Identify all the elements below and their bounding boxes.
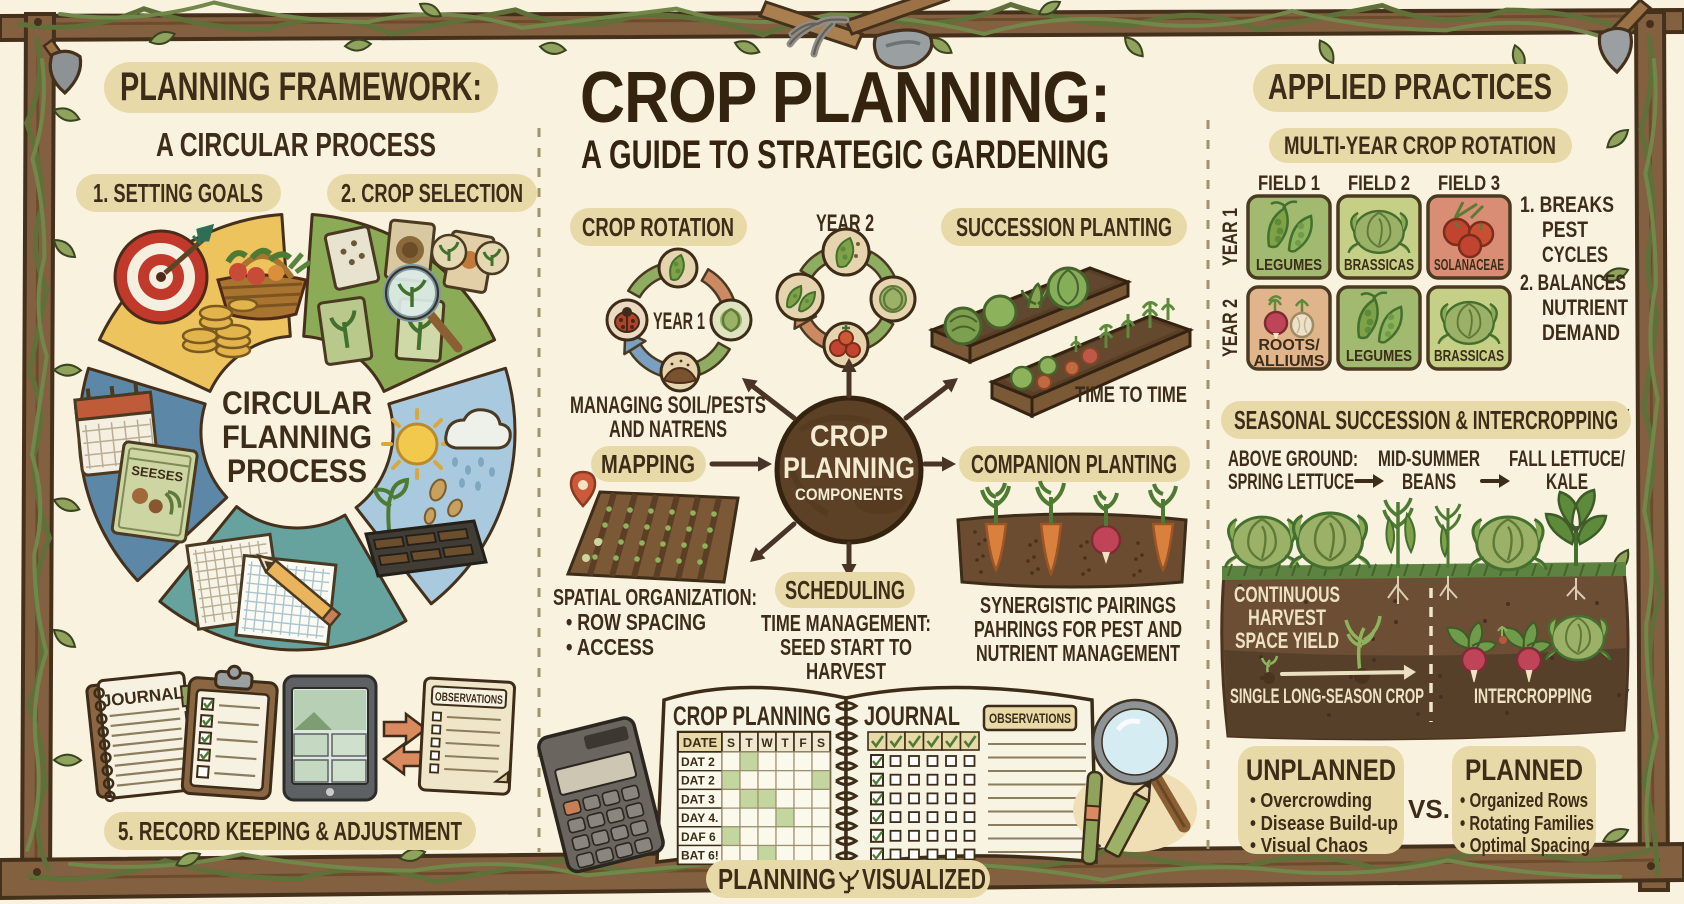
- svg-text:DAF 6: DAF 6: [681, 830, 716, 844]
- svg-text:APPLIED PRACTICES: APPLIED PRACTICES: [1268, 66, 1552, 107]
- svg-text:NUTRIENT: NUTRIENT: [1542, 295, 1628, 320]
- svg-text:FALL LETTUCE/: FALL LETTUCE/: [1509, 446, 1625, 471]
- svg-text:• Organized Rows: • Organized Rows: [1460, 790, 1588, 812]
- svg-text:T: T: [781, 736, 789, 750]
- svg-text:A CIRCULAR PROCESS: A CIRCULAR PROCESS: [156, 126, 436, 163]
- svg-text:AND NATRENS: AND NATRENS: [609, 416, 727, 443]
- svg-text:• Optimal Spacing: • Optimal Spacing: [1460, 835, 1590, 857]
- svg-text:5. RECORD KEEPING & ADJUSTMENT: 5. RECORD KEEPING & ADJUSTMENT: [118, 816, 462, 846]
- svg-text:• ROW SPACING: • ROW SPACING: [566, 609, 706, 635]
- svg-text:DATE: DATE: [683, 735, 718, 750]
- svg-text:YEAR 1: YEAR 1: [1219, 208, 1242, 266]
- svg-text:CROP PLANNING: CROP PLANNING: [673, 701, 831, 731]
- svg-text:SYNERGISTIC PAIRINGS: SYNERGISTIC PAIRINGS: [980, 592, 1176, 618]
- svg-text:SCHEDULING: SCHEDULING: [785, 575, 905, 605]
- svg-text:2. BALANCES: 2. BALANCES: [1520, 270, 1626, 295]
- svg-text:MANAGING SOIL/PESTS: MANAGING SOIL/PESTS: [570, 392, 766, 419]
- svg-text:MID-SUMMER: MID-SUMMER: [1378, 446, 1480, 471]
- svg-text:PAHRINGS FOR PEST AND: PAHRINGS FOR PEST AND: [974, 616, 1182, 642]
- svg-text:NUTRIENT MANAGEMENT: NUTRIENT MANAGEMENT: [976, 640, 1180, 666]
- svg-text:FLANNING: FLANNING: [222, 419, 372, 455]
- svg-text:1. SETTING GOALS: 1. SETTING GOALS: [93, 178, 263, 208]
- svg-text:MULTI-YEAR CROP ROTATION: MULTI-YEAR CROP ROTATION: [1284, 132, 1556, 160]
- svg-text:• Visual Chaos: • Visual Chaos: [1250, 835, 1368, 857]
- svg-text:BEANS: BEANS: [1402, 469, 1456, 494]
- svg-text:DAT 2: DAT 2: [681, 755, 715, 769]
- svg-text:PEST: PEST: [1542, 217, 1588, 242]
- svg-text:YEAR 2: YEAR 2: [1219, 299, 1242, 357]
- svg-text:CROP PLANNING:: CROP PLANNING:: [580, 58, 1110, 138]
- svg-text:2. CROP SELECTION: 2. CROP SELECTION: [341, 178, 523, 208]
- svg-text:LEGUMES: LEGUMES: [1346, 348, 1412, 365]
- svg-text:F: F: [799, 736, 806, 750]
- svg-text:CIRCULAR: CIRCULAR: [222, 385, 372, 421]
- svg-text:MAPPING: MAPPING: [601, 449, 695, 479]
- svg-text:BAT 6!: BAT 6!: [681, 849, 719, 863]
- svg-text:DAT 2: DAT 2: [681, 774, 715, 788]
- svg-text:JOURNAL: JOURNAL: [864, 701, 960, 731]
- svg-text:SEED START TO: SEED START TO: [780, 634, 912, 660]
- svg-text:S: S: [817, 736, 825, 750]
- svg-text:COMPONENTS: COMPONENTS: [795, 485, 903, 504]
- svg-text:• Overcrowding: • Overcrowding: [1250, 790, 1372, 812]
- svg-text:CYCLES: CYCLES: [1542, 242, 1608, 267]
- svg-text:1. BREAKS: 1. BREAKS: [1520, 192, 1614, 217]
- svg-text:OBSERVATIONS: OBSERVATIONS: [989, 710, 1071, 726]
- svg-text:BRASSICAS: BRASSICAS: [1434, 348, 1504, 365]
- svg-text:FIELD 2: FIELD 2: [1348, 172, 1410, 195]
- svg-text:SPRING LETTUCE: SPRING LETTUCE: [1228, 469, 1354, 494]
- svg-text:SPACE YIELD: SPACE YIELD: [1235, 628, 1339, 653]
- svg-text:A GUIDE TO STRATEGIC GARDENING: A GUIDE TO STRATEGIC GARDENING: [581, 133, 1109, 177]
- svg-text:TIME TO TIME: TIME TO TIME: [1075, 382, 1187, 407]
- svg-text:KALE: KALE: [1546, 469, 1588, 494]
- svg-text:SUCCESSION PLANTING: SUCCESSION PLANTING: [956, 212, 1172, 242]
- svg-text:PLANNING: PLANNING: [718, 864, 836, 896]
- svg-text:DAT 3: DAT 3: [681, 792, 715, 806]
- svg-text:CROP ROTATION: CROP ROTATION: [582, 212, 734, 242]
- svg-text:• Rotating Families: • Rotating Families: [1460, 813, 1594, 835]
- svg-text:INTERCROPPING: INTERCROPPING: [1474, 685, 1592, 708]
- svg-text:SPATIAL ORGANIZATION:: SPATIAL ORGANIZATION:: [553, 584, 757, 610]
- svg-text:PLANNING FRAMEWORK:: PLANNING FRAMEWORK:: [120, 65, 482, 109]
- svg-text:UNPLANNED: UNPLANNED: [1246, 754, 1396, 787]
- svg-text:HARVEST: HARVEST: [806, 658, 886, 684]
- svg-text:W: W: [761, 736, 773, 750]
- svg-text:TIME MANAGEMENT:: TIME MANAGEMENT:: [761, 610, 931, 636]
- svg-text:CONTINUOUS: CONTINUOUS: [1234, 582, 1340, 607]
- svg-text:SOLANACEAE: SOLANACEAE: [1434, 257, 1504, 274]
- svg-text:SEASONAL SUCCESSION & INTERCRO: SEASONAL SUCCESSION & INTERCROPPING: [1234, 405, 1618, 435]
- svg-text:T: T: [745, 736, 753, 750]
- svg-text:BRASSICAS: BRASSICAS: [1344, 257, 1414, 274]
- svg-text:ALLIUMS: ALLIUMS: [1253, 353, 1324, 370]
- svg-text:COMPANION PLANTING: COMPANION PLANTING: [971, 449, 1177, 479]
- svg-text:LEGUMES: LEGUMES: [1256, 257, 1322, 274]
- svg-text:HARVEST: HARVEST: [1248, 605, 1326, 630]
- svg-text:VISUALIZED: VISUALIZED: [862, 864, 986, 896]
- svg-text:PLANNING: PLANNING: [783, 452, 915, 485]
- svg-text:S: S: [727, 736, 735, 750]
- svg-text:SINGLE LONG-SEASON CROP: SINGLE LONG-SEASON CROP: [1230, 685, 1424, 708]
- svg-text:ABOVE GROUND:: ABOVE GROUND:: [1228, 446, 1358, 471]
- svg-text:• Disease Build-up: • Disease Build-up: [1250, 813, 1398, 835]
- svg-text:VS.: VS.: [1408, 794, 1450, 824]
- svg-text:FIELD 3: FIELD 3: [1438, 172, 1500, 195]
- svg-text:YEAR 1: YEAR 1: [653, 308, 705, 335]
- svg-text:DAY 4.: DAY 4.: [681, 811, 718, 825]
- svg-text:• ACCESS: • ACCESS: [566, 634, 654, 660]
- svg-text:DEMAND: DEMAND: [1542, 320, 1620, 345]
- svg-text:PROCESS: PROCESS: [227, 453, 367, 489]
- svg-text:ROOTS/: ROOTS/: [1258, 337, 1320, 354]
- svg-text:FIELD 1: FIELD 1: [1258, 172, 1320, 195]
- svg-text:PLANNED: PLANNED: [1465, 754, 1583, 787]
- svg-text:CROP: CROP: [810, 420, 888, 453]
